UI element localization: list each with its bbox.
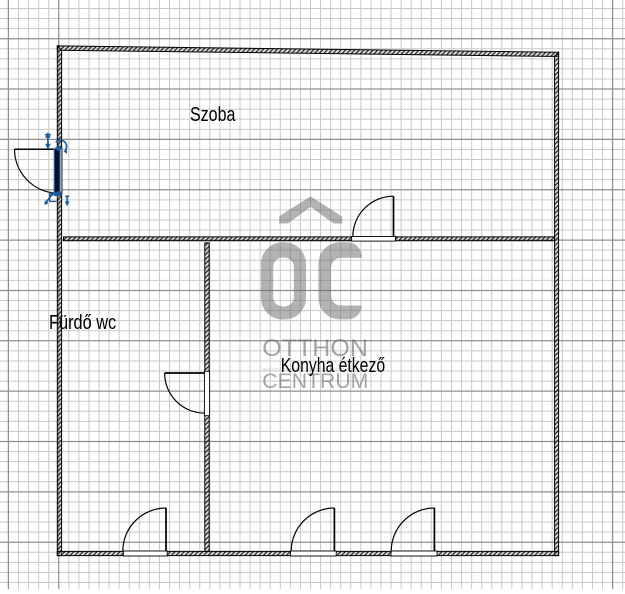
- svg-text:Fürdő wc: Fürdő wc: [49, 312, 116, 334]
- svg-text:Szoba: Szoba: [190, 104, 236, 126]
- svg-text:Konyha étkező: Konyha étkező: [281, 355, 385, 377]
